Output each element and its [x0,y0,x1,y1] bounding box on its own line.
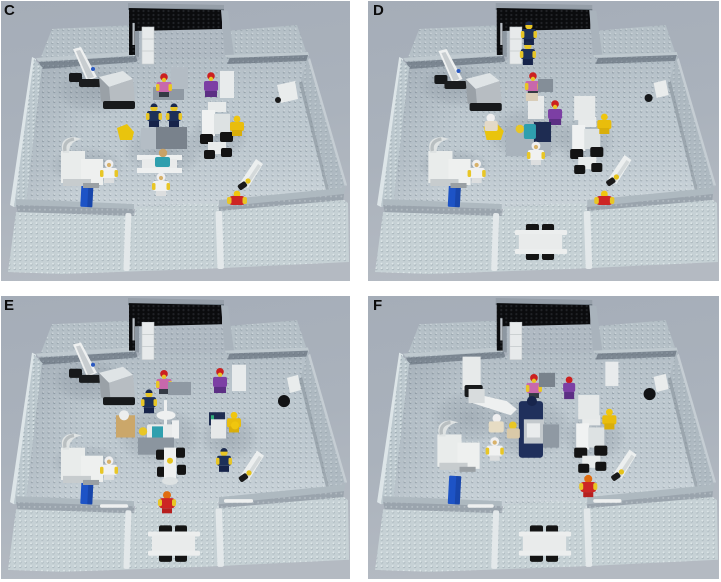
svg-text:F: F [373,297,382,314]
svg-text:D: D [373,2,384,19]
svg-text:C: C [4,2,15,19]
svg-text:E: E [4,297,14,314]
